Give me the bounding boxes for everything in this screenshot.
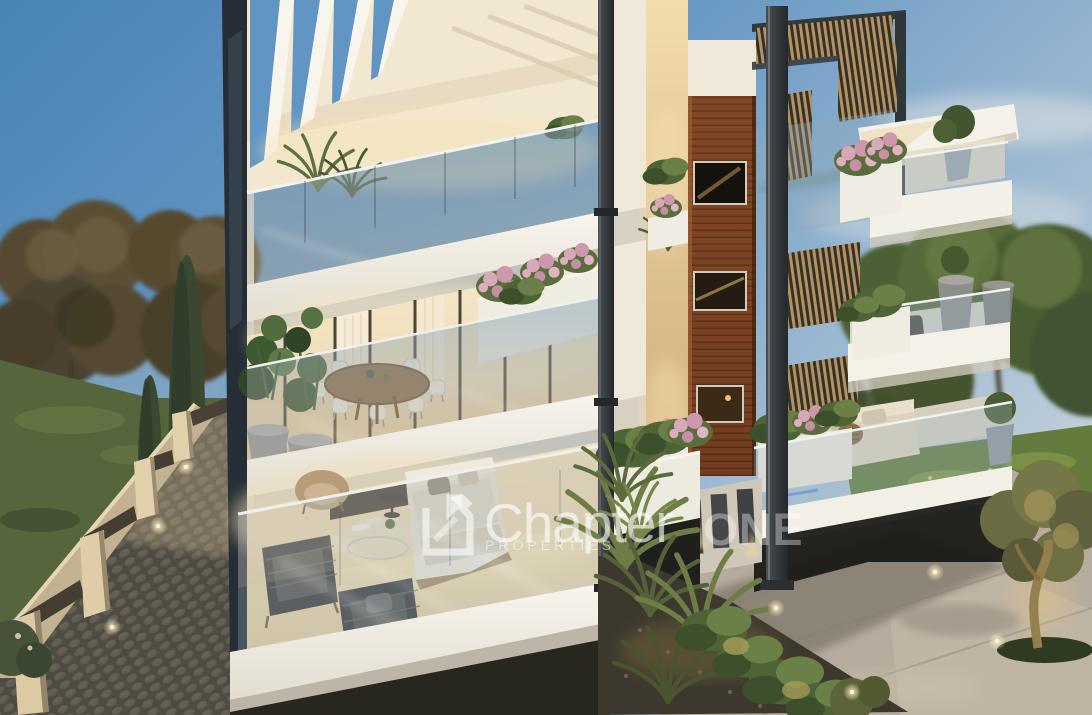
- timber-clad-core: [688, 40, 756, 476]
- core-window-3: [697, 386, 743, 422]
- architectural-render: Chapter ONE PROPERTIES: [0, 0, 1092, 715]
- core-window-2: [694, 272, 746, 310]
- lower-right-terrace: [749, 392, 1016, 592]
- core-window-1: [694, 162, 746, 204]
